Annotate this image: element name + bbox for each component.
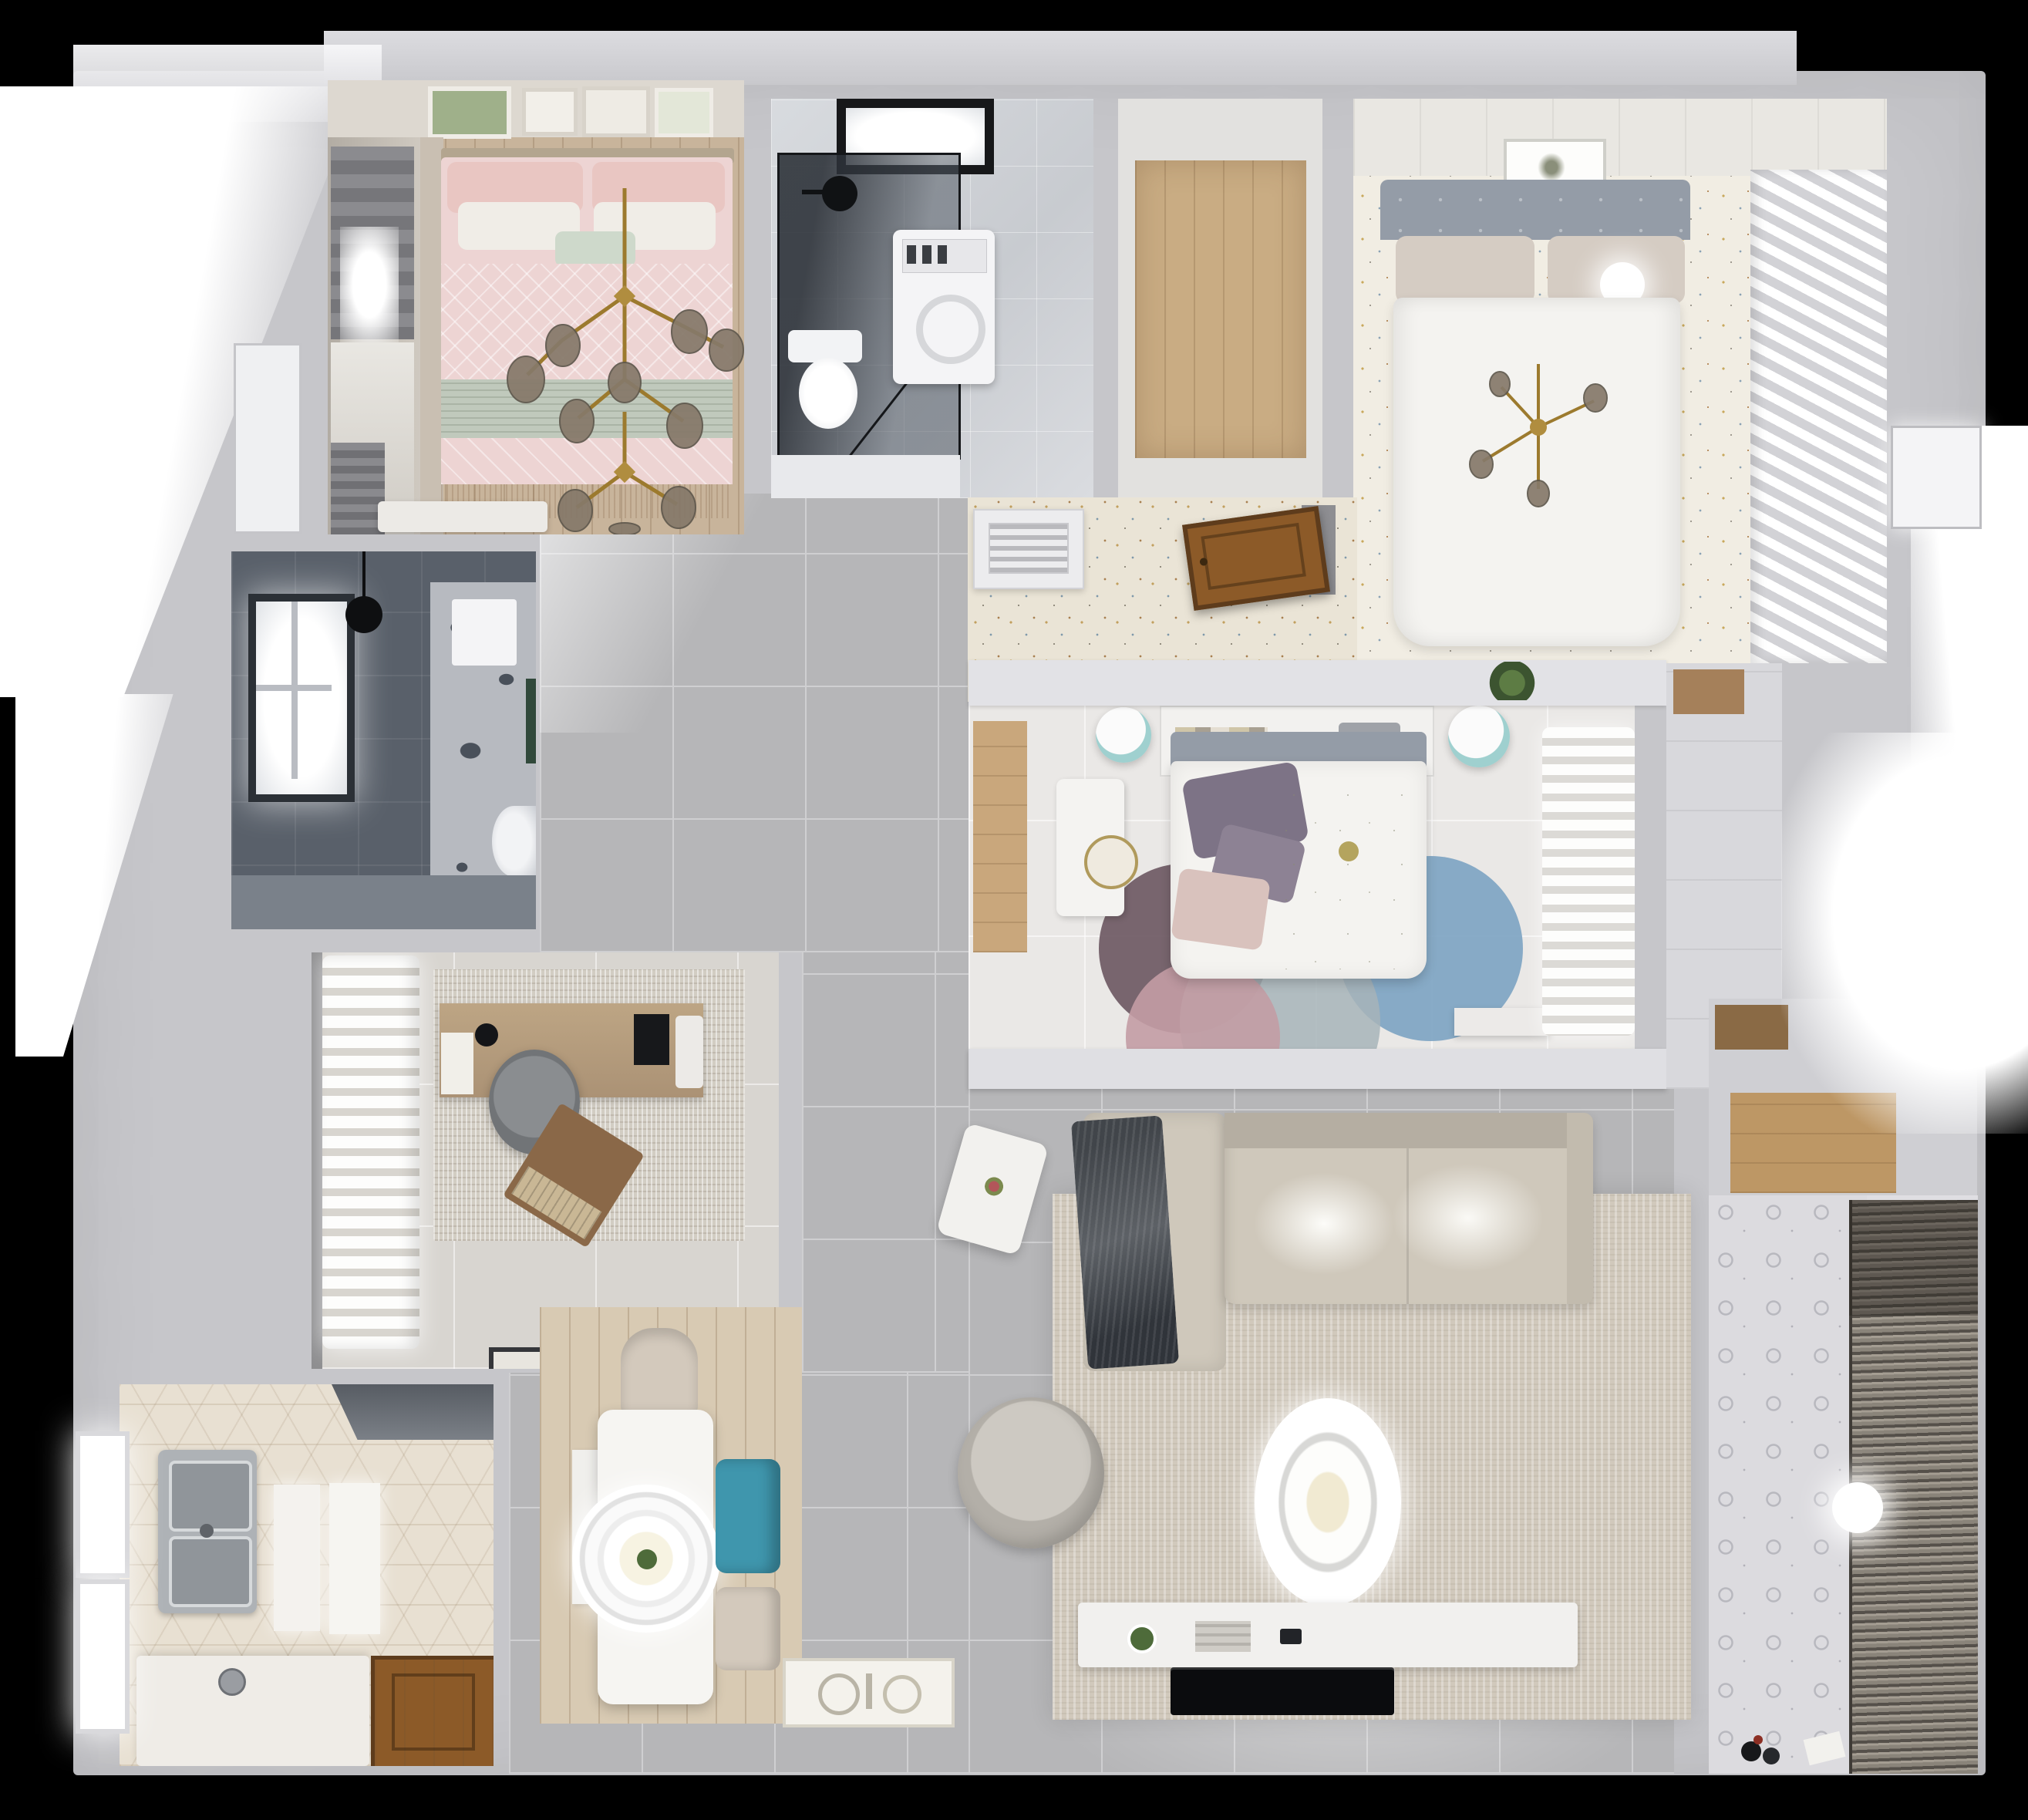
curtain-dark-lower	[331, 443, 385, 534]
duvet-gold-dot	[1339, 841, 1359, 861]
sofa-arm-right	[1567, 1113, 1593, 1304]
dining-ring-pendant-light	[572, 1485, 720, 1633]
door-white-left-wall	[234, 343, 302, 534]
shower-arm	[802, 190, 833, 194]
frame-sketch	[1538, 153, 1565, 182]
bed-headboard-grey	[1380, 180, 1690, 240]
sofa-backrest	[1225, 1113, 1593, 1148]
faucet-icon	[200, 1524, 214, 1538]
wainscot-band	[420, 137, 443, 534]
console-camera-icon	[1280, 1629, 1302, 1644]
pendant-plant-icon	[637, 1549, 657, 1569]
study-curtains	[322, 956, 419, 1349]
plant-accent	[526, 679, 536, 763]
washer-door-ring	[916, 295, 985, 364]
console-plant-icon	[1127, 1624, 1157, 1653]
k-doormat	[783, 1658, 955, 1727]
midbed-bench	[1454, 1008, 1550, 1036]
doormat-motif-ring	[818, 1673, 860, 1715]
room-bedroom-pink	[328, 80, 744, 534]
kitchen-window-upper	[76, 1431, 130, 1578]
armchair-round	[958, 1397, 1104, 1549]
hallway-floor-mid	[802, 952, 969, 1373]
desk-chair-white	[675, 1016, 703, 1088]
room-bathroom-dark	[231, 551, 536, 929]
closet-wood-box	[1673, 669, 1744, 714]
balcony-pattern-floor	[1709, 1195, 1867, 1774]
tv-console	[1078, 1603, 1578, 1667]
duvet-floral-specks	[1278, 777, 1417, 969]
pillow-blush	[1171, 868, 1271, 951]
kitchen-hood-dark	[332, 1384, 494, 1440]
frame-botanical-small	[655, 88, 713, 137]
midbed-wood-strip	[973, 721, 1027, 952]
pendant-stem	[362, 551, 366, 598]
washing-machine	[893, 230, 995, 384]
balcony-ceiling-light	[1832, 1482, 1883, 1533]
kettle-icon	[218, 1668, 246, 1696]
room-study	[312, 952, 779, 1369]
door-white-master	[1891, 426, 1982, 529]
double-sink	[158, 1450, 257, 1613]
sink-basin-top	[169, 1461, 252, 1532]
midbed-curtains-right	[1542, 727, 1635, 1036]
gold-chandelier-icon	[463, 180, 744, 534]
side-table-flower-icon	[982, 1175, 1006, 1198]
console-books	[1195, 1621, 1251, 1652]
stool-teal-right	[1448, 706, 1510, 767]
dining-chair-top	[621, 1328, 698, 1414]
nook-shelf-brown	[1715, 1005, 1788, 1050]
pendant-lamp-icon	[345, 596, 382, 633]
sofa-throw-dark	[1071, 1115, 1179, 1369]
plant-on-halfwall	[1488, 662, 1536, 700]
blinds-top-dark	[1849, 1200, 1978, 1316]
sink-basin-bottom	[169, 1536, 252, 1607]
dining-chair-teal	[716, 1459, 780, 1573]
sofa-main	[1225, 1113, 1593, 1304]
midbed-bed	[1171, 761, 1427, 979]
backlit-window	[248, 594, 355, 802]
outer-top-wall	[324, 31, 1797, 85]
counter-mat-1	[274, 1485, 320, 1631]
bath-floor-strip	[231, 875, 536, 929]
kitchen-window-lower	[76, 1579, 130, 1734]
dining-chair-beige	[716, 1587, 780, 1670]
desk-speaker-icon	[475, 1023, 498, 1046]
window-mullion-h	[256, 685, 332, 691]
glow-right-mid	[1781, 733, 2028, 1134]
midbed-desk-chair	[1084, 835, 1138, 889]
room-balcony	[1709, 1195, 1978, 1774]
toilet-dark-bath	[492, 806, 536, 877]
toy-red	[1753, 1735, 1763, 1744]
toy-black-2	[1763, 1748, 1780, 1764]
room-closet-top	[1118, 99, 1322, 498]
bath-mat-strip	[771, 455, 960, 498]
doormat-motif-bar	[866, 1673, 872, 1709]
wall-below-midbed	[969, 1049, 1666, 1089]
wardrobe-slatted	[1750, 170, 1887, 663]
room-bedroom-middle	[969, 706, 1666, 1053]
living-ring-pendant-light	[1255, 1398, 1401, 1606]
kitchen-counter-bottom	[136, 1656, 369, 1766]
midbed-right-wall	[1635, 706, 1666, 1053]
floorplan-render	[0, 0, 2028, 1820]
washer-buttons	[907, 245, 953, 264]
toilet-bowl	[799, 358, 857, 429]
halfwall-plant-band	[969, 660, 1666, 706]
frame-print	[582, 86, 650, 137]
pillow-beige-left	[1396, 236, 1534, 304]
closet-wood-floor	[1135, 160, 1306, 458]
towel-white	[452, 599, 517, 666]
sofa-cushion-seam	[1406, 1148, 1409, 1304]
room-bathroom-main	[771, 99, 1093, 498]
study-wall-sliver	[312, 952, 322, 1369]
frame-botanical-green	[428, 86, 511, 139]
counter-mat-2	[329, 1483, 380, 1634]
vent-cabinet	[973, 509, 1084, 589]
ceiling-panel-strip	[1353, 99, 1887, 176]
room-bedroom-master	[1353, 99, 1887, 663]
monitor-icon	[634, 1014, 669, 1065]
kitchen-wood-door	[371, 1656, 494, 1766]
tv-flat	[1171, 1667, 1394, 1715]
doormat-motif-ring2	[883, 1675, 921, 1714]
room-kitchen	[120, 1384, 494, 1766]
kitchen-door-panel	[392, 1673, 475, 1751]
gold-chandelier-small-icon	[1461, 353, 1615, 515]
stool-teal-left	[1096, 707, 1151, 763]
desk-paper	[441, 1033, 473, 1094]
frame-blank	[522, 88, 578, 136]
door-panel-inset	[1201, 523, 1305, 590]
vent-grille-icon	[989, 523, 1069, 574]
window-sill-glow	[340, 227, 399, 342]
